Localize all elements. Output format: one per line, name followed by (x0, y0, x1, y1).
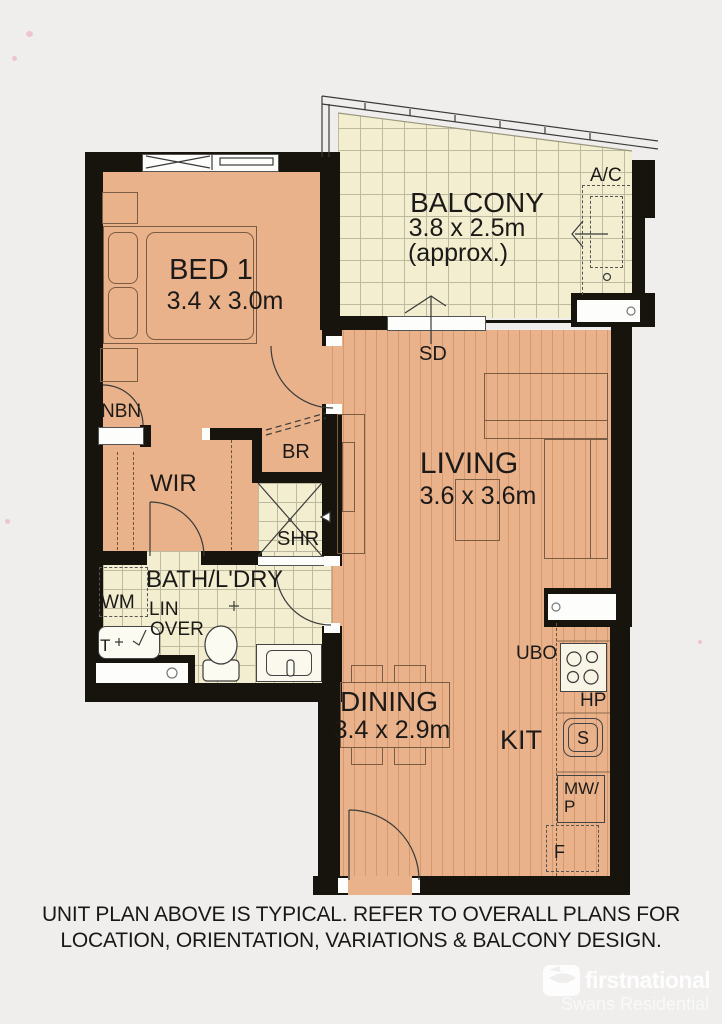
entry-jamb-right (412, 878, 420, 893)
bed-door-jamb-top (326, 336, 342, 346)
pillow (108, 287, 138, 339)
entry-jamb-left (338, 878, 348, 893)
living-right-wall (611, 320, 632, 595)
bedside-table (100, 348, 138, 382)
room-label-living: LIVING (420, 449, 518, 479)
dining-chair (351, 747, 383, 765)
brand-name: firstnational (585, 967, 710, 994)
room-dims-dining: 3.4 x 2.9m (334, 718, 451, 743)
sofa-right-cushion-line (590, 439, 591, 559)
label-sink: S (577, 729, 589, 747)
bath-door-jamb-bottom (324, 623, 340, 633)
robe-rail-line (231, 440, 232, 550)
service-box (577, 300, 640, 322)
planter-box (96, 663, 188, 683)
label-ac: A/C (590, 166, 622, 185)
ac-unit-inner (590, 196, 623, 268)
room-label-balcony: BALCONY (410, 189, 544, 217)
bed-door-jamb-bottom (326, 404, 342, 414)
bath-top-wall-right (201, 551, 262, 565)
dining-chair (351, 665, 383, 683)
room-dims-balcony: 3.8 x 2.5m (409, 216, 526, 241)
balcony-right-wall-lower (632, 218, 645, 295)
balcony-right-wall-upper (632, 160, 655, 218)
dining-chair (394, 747, 426, 765)
firstnational-logo-icon (543, 965, 580, 996)
dresser (102, 192, 138, 224)
scan-speck (5, 519, 10, 524)
nbn-cabinet (98, 427, 144, 445)
room-label-bath: BATH/L'DRY (146, 568, 283, 592)
sofa-top (484, 373, 608, 439)
disclaimer-line-1: UNIT PLAN ABOVE IS TYPICAL. REFER TO OVE… (42, 903, 680, 927)
mattress (146, 232, 254, 340)
scan-speck (26, 31, 33, 37)
label-mw: MW/ (564, 780, 599, 797)
entry-opening (348, 876, 412, 895)
room-dims-balcony-approx: (approx.) (408, 241, 508, 266)
label-shr: SHR (277, 529, 319, 549)
robe-shelf-line (133, 452, 134, 550)
ac-zone-left-line (582, 185, 583, 295)
disclaimer-line-2: LOCATION, ORIENTATION, VARIATIONS & BALC… (60, 929, 661, 953)
balcony-living-thin-wall (483, 320, 573, 323)
bath-door-jamb-top (324, 556, 340, 566)
sliding-door-panel (387, 316, 486, 331)
room-dims-living: 3.6 x 3.6m (420, 484, 537, 509)
kitchen-right-wall (610, 620, 630, 895)
room-label-bed1: BED 1 (169, 256, 253, 285)
label-hp: HP (580, 691, 606, 710)
cooktop (560, 643, 607, 692)
pillow (108, 232, 138, 284)
room-label-wir: WIR (150, 472, 197, 496)
robe-stub-wall (210, 428, 258, 440)
label-fridge: F (554, 843, 565, 861)
scan-speck (698, 640, 702, 644)
kitchen-window-box (548, 594, 616, 620)
label-ubo: UBO (516, 644, 557, 663)
sliding-door-wall-stub (340, 316, 390, 330)
label-over: OVER (150, 620, 204, 639)
label-nbn: NBN (101, 402, 141, 421)
shower-screen (258, 556, 332, 566)
floor-plan-page: BED 1 3.4 x 3.0m BALCONY 3.8 x 2.5m (app… (0, 0, 722, 1024)
robe-shelf-line (117, 452, 118, 550)
room-dims-bed1: 3.4 x 3.0m (167, 289, 284, 314)
dining-chair (394, 665, 426, 683)
room-label-kitchen: KIT (500, 727, 542, 754)
label-sd: SD (419, 344, 447, 364)
tv-unit-inner (342, 442, 355, 512)
label-trough: T (100, 637, 110, 654)
brand-subtitle: Swans Residential (561, 994, 709, 1015)
label-p: P (564, 798, 575, 815)
bath-top-wall-left (85, 551, 147, 565)
br-bottom-wall (258, 472, 332, 483)
bed1-window (142, 154, 279, 172)
label-br: BR (282, 442, 310, 462)
bed-balcony-wall (320, 152, 340, 330)
label-wm: WM (101, 593, 135, 612)
scan-speck (12, 56, 17, 61)
room-label-dining: DINING (340, 688, 438, 716)
robe-door-jamb (202, 428, 210, 440)
label-lin: LIN (149, 600, 179, 619)
sofa-right (544, 439, 608, 559)
sofa-top-cushion-line (484, 420, 608, 421)
vanity-basin (266, 650, 312, 676)
